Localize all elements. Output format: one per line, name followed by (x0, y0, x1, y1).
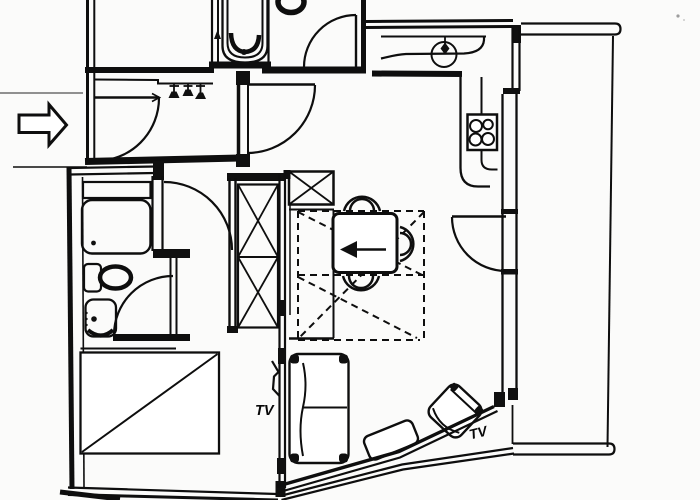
svg-text:TV: TV (467, 422, 490, 442)
svg-text:TV: TV (255, 403, 275, 419)
